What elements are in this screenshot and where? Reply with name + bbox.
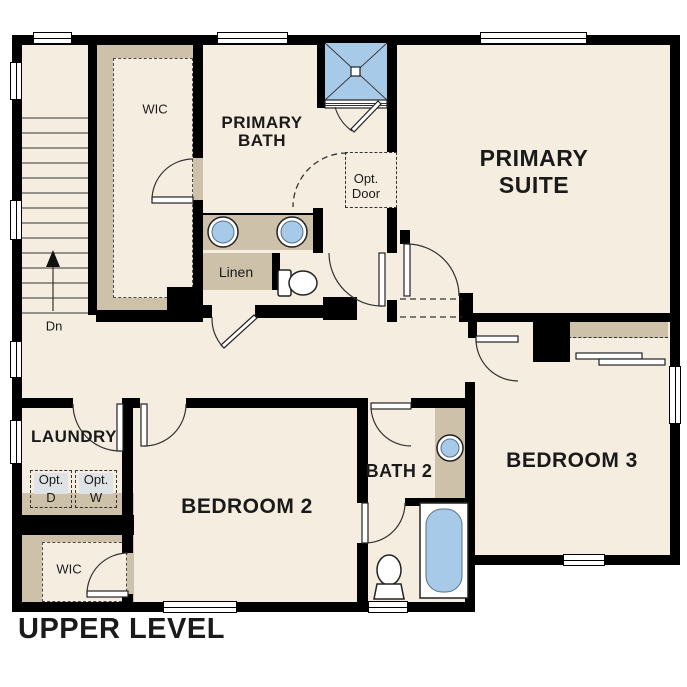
wall (22, 398, 73, 408)
annotation-stairs-down: Dn (46, 319, 63, 334)
wall (193, 45, 203, 158)
wall (255, 305, 323, 318)
floor-plan: WIC PRIMARYBATH PRIMARYSUITE Opt.Door Li… (0, 0, 687, 687)
wall (468, 320, 477, 338)
wall (387, 208, 397, 253)
wall (193, 200, 203, 290)
wall (387, 300, 397, 322)
window (10, 200, 22, 240)
wall (272, 253, 280, 290)
room-label-wic-upper: WIC (142, 102, 167, 117)
plan-title: UPPER LEVEL (18, 613, 225, 646)
wall (186, 398, 368, 408)
annotation-opt-washer: Opt.W (84, 471, 109, 507)
wall (466, 313, 680, 322)
primary-vanity-counter (198, 213, 313, 250)
annotation-opt-door: Opt.Door (352, 171, 380, 201)
wall (533, 319, 570, 362)
bath2-vanity-counter (435, 408, 467, 498)
wall (411, 398, 466, 408)
exterior-area (475, 565, 687, 687)
wall (405, 498, 472, 506)
window (217, 32, 288, 44)
shower (325, 43, 387, 100)
window (33, 32, 72, 44)
room-label-primary-bath: PRIMARYBATH (221, 114, 302, 150)
window (10, 420, 22, 464)
wall (357, 543, 368, 612)
wall (323, 297, 357, 320)
window (10, 341, 22, 378)
window (10, 62, 22, 100)
room-label-bath2: BATH 2 (366, 462, 433, 480)
annotation-opt-dryer: Opt.D (39, 471, 64, 507)
wic-upper-shelving (113, 58, 193, 298)
room-label-primary-suite: PRIMARYSUITE (480, 145, 589, 199)
wall (670, 35, 680, 565)
window (563, 554, 605, 566)
wall (465, 382, 475, 612)
wall (400, 230, 410, 244)
room-label-bedroom3: BEDROOM 3 (506, 449, 638, 473)
window (368, 601, 408, 613)
room-label-wic-lower: WIC (56, 562, 81, 577)
room-label-linen: Linen (219, 264, 253, 280)
window (480, 32, 587, 44)
wall (12, 35, 22, 612)
wall (317, 35, 325, 108)
bedroom3-closet-shelf (563, 322, 668, 338)
wall (88, 45, 97, 315)
wall (357, 398, 368, 503)
wall (313, 208, 323, 253)
wall (387, 35, 397, 152)
wall (197, 305, 212, 318)
window (163, 601, 237, 613)
wall (122, 594, 133, 612)
wall (22, 515, 134, 535)
wic-lower-shelving (42, 542, 127, 602)
room-label-bedroom2: BEDROOM 2 (181, 495, 313, 519)
room-label-laundry: LAUNDRY (31, 427, 117, 447)
window (669, 366, 681, 424)
